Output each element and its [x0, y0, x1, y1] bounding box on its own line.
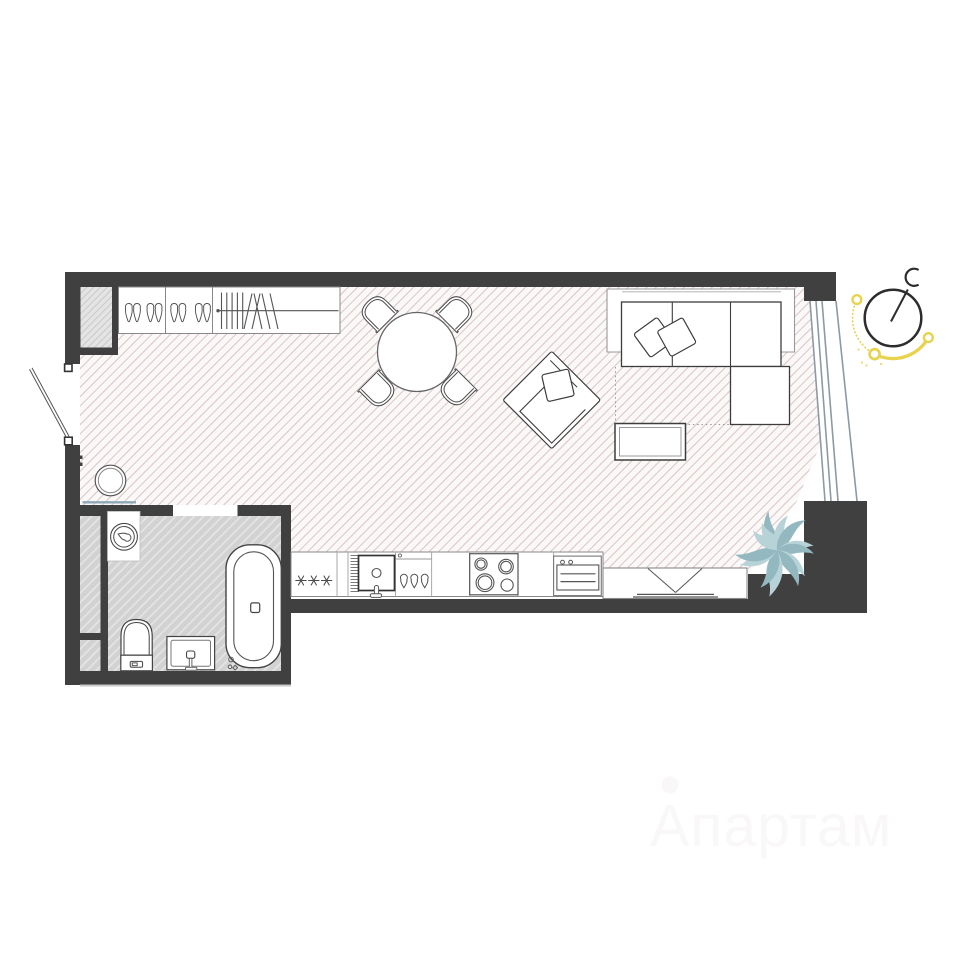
svg-text:Апартам: Апартам — [650, 793, 892, 859]
